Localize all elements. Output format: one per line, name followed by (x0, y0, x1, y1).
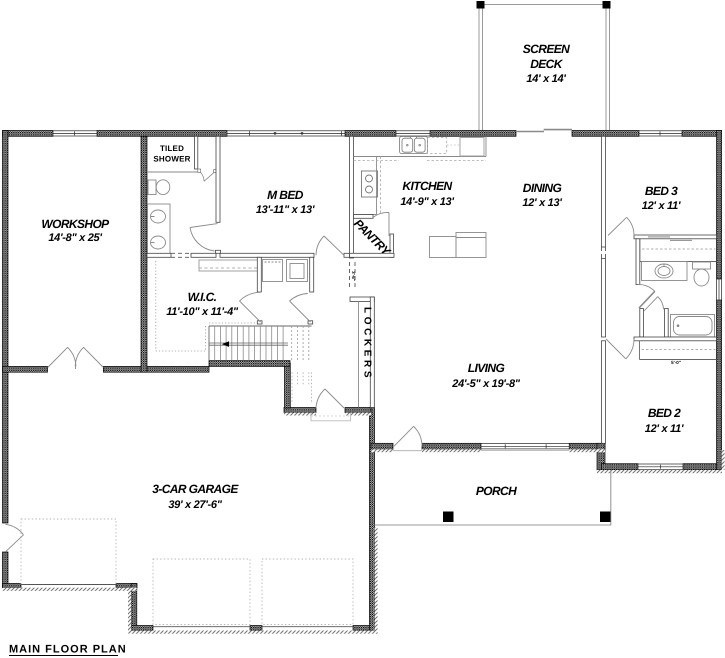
svg-text:LIVING: LIVING (468, 361, 505, 375)
svg-text:13'-11" x 13': 13'-11" x 13' (256, 204, 315, 216)
svg-text:5'-0": 5'-0" (671, 360, 681, 365)
svg-text:PORCH: PORCH (476, 484, 517, 498)
svg-text:DINING: DINING (523, 181, 562, 195)
svg-text:SCREEN: SCREEN (523, 42, 570, 56)
svg-text:WORKSHOP: WORKSHOP (41, 217, 110, 231)
svg-text:MAIN FLOOR PLAN: MAIN FLOOR PLAN (9, 644, 127, 656)
svg-text:12' x 13': 12' x 13' (522, 197, 562, 209)
svg-text:11'-10" x 11'-4": 11'-10" x 11'-4" (166, 306, 239, 318)
svg-text:24'-5" x 19'-8": 24'-5" x 19'-8" (451, 378, 521, 390)
svg-text:SHOWER: SHOWER (153, 155, 190, 164)
svg-text:LOCKERS: LOCKERS (361, 307, 372, 381)
svg-text:3-CAR GARAGE: 3-CAR GARAGE (152, 482, 239, 496)
svg-text:12' x 11': 12' x 11' (642, 200, 681, 212)
svg-text:BED 2: BED 2 (648, 406, 681, 420)
svg-text:3'-6": 3'-6" (351, 271, 356, 281)
svg-text:14'-8" x 25': 14'-8" x 25' (48, 232, 102, 244)
svg-text:12' x 11': 12' x 11' (645, 423, 684, 435)
svg-text:DECK: DECK (530, 57, 564, 71)
svg-text:14'-9" x 13': 14'-9" x 13' (400, 196, 454, 208)
svg-text:39' x 27'-6": 39' x 27'-6" (168, 499, 222, 511)
svg-text:BED 3: BED 3 (645, 184, 678, 198)
svg-text:KITCHEN: KITCHEN (402, 179, 452, 193)
svg-text:M BED: M BED (267, 188, 304, 202)
svg-text:14' x 14': 14' x 14' (526, 73, 566, 85)
svg-text:W.I.C.: W.I.C. (188, 290, 217, 304)
svg-text:TILED: TILED (160, 144, 184, 153)
